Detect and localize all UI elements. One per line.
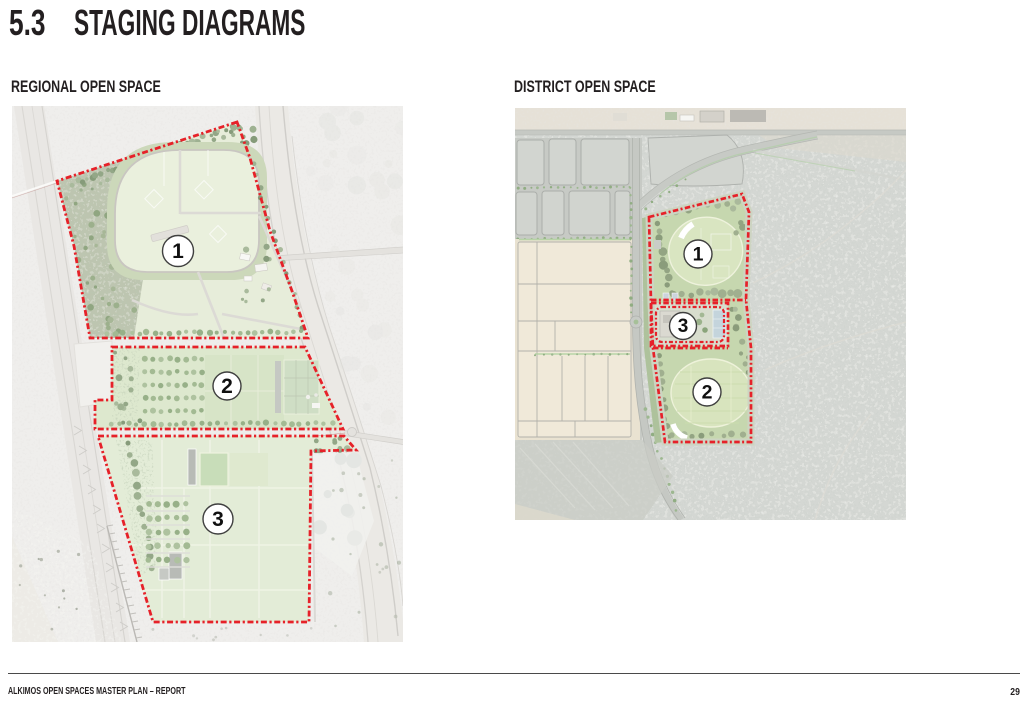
svg-text:2: 2 [221,375,233,398]
svg-text:1: 1 [172,240,184,263]
svg-text:1: 1 [693,244,704,266]
svg-text:3: 3 [678,316,689,337]
svg-text:2: 2 [702,382,713,404]
svg-text:3: 3 [212,508,224,531]
